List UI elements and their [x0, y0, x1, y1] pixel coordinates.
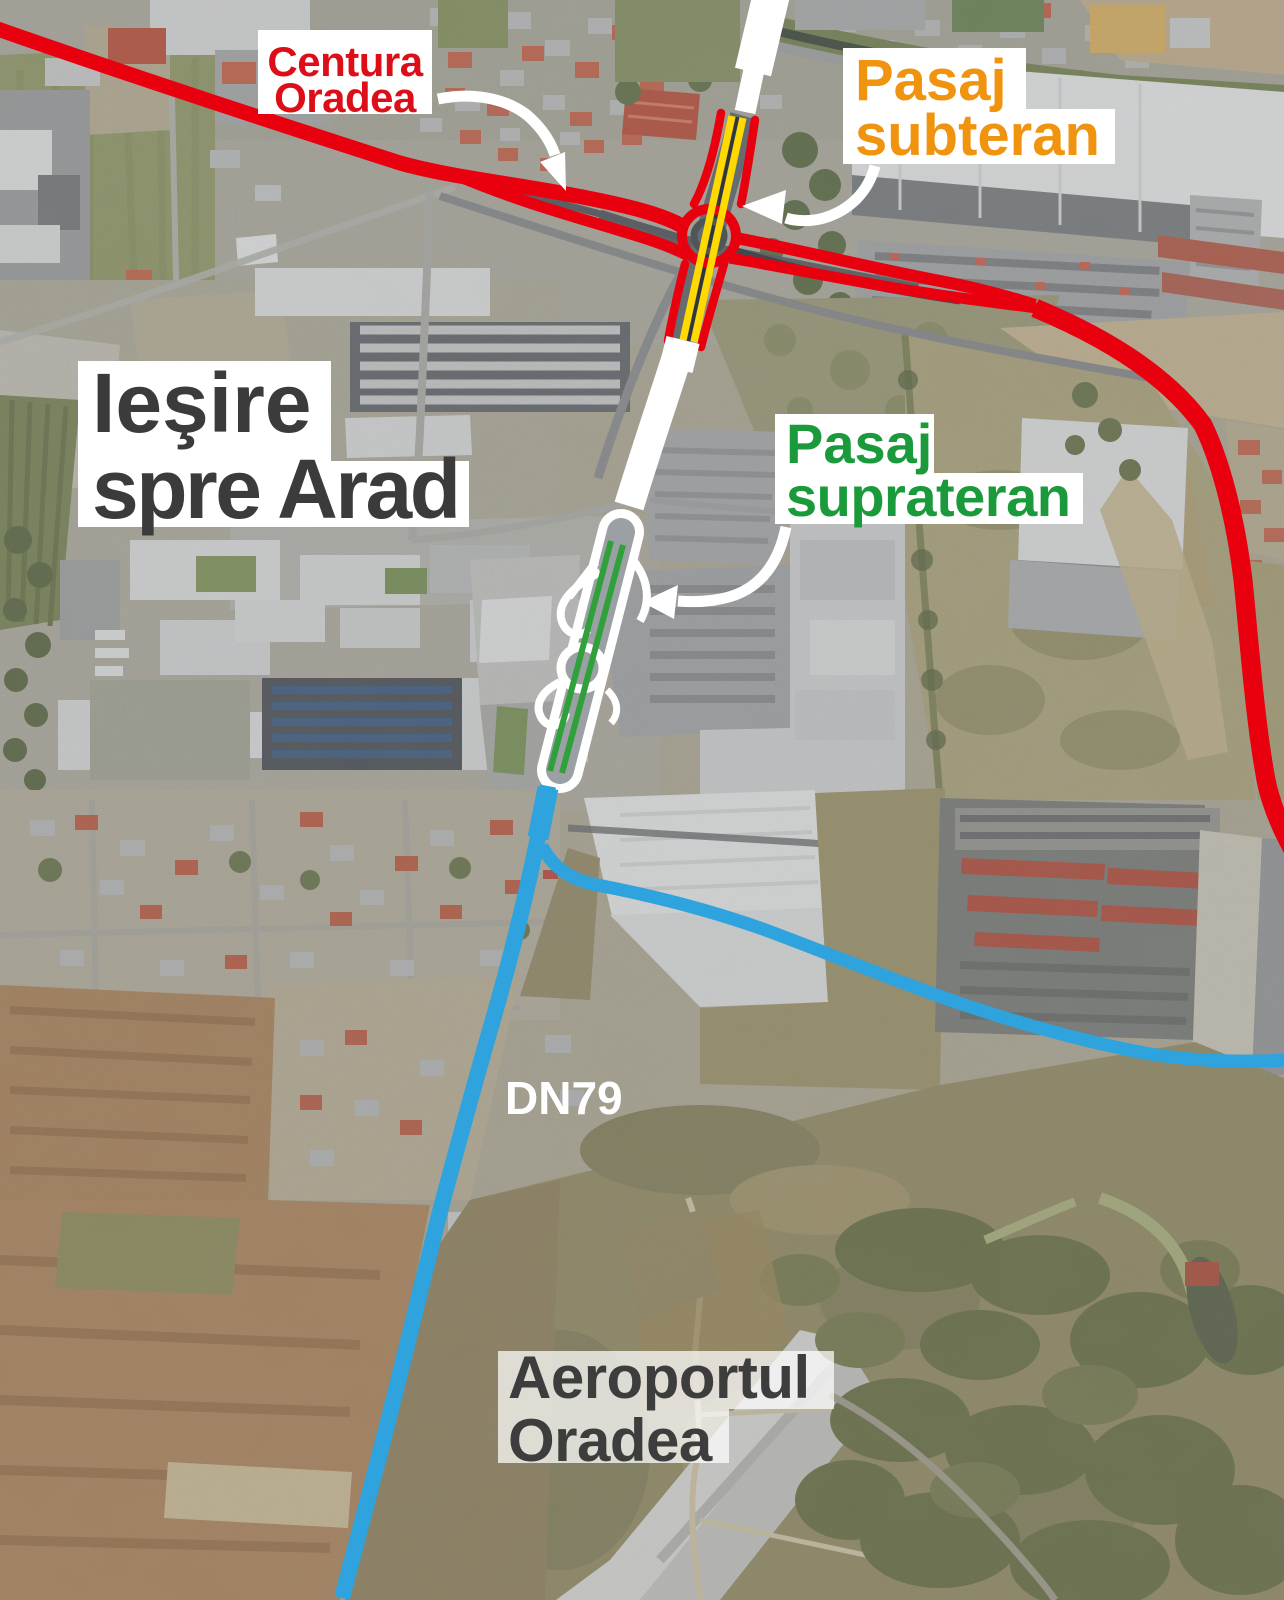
svg-text:Oradea: Oradea — [508, 1407, 713, 1474]
svg-text:subteran: subteran — [855, 103, 1100, 168]
svg-text:spre Arad: spre Arad — [92, 442, 459, 536]
svg-text:Aeroportul: Aeroportul — [508, 1344, 810, 1411]
svg-text:suprateran: suprateran — [786, 465, 1070, 528]
svg-text:DN79: DN79 — [505, 1072, 623, 1124]
svg-text:Ieşire: Ieşire — [92, 356, 312, 450]
svg-text:Oradea: Oradea — [274, 74, 417, 121]
